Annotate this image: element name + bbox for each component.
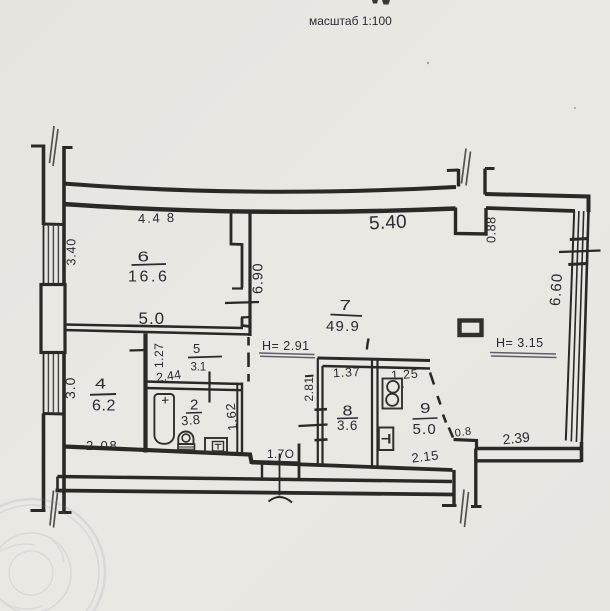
svg-text:H= 3.15: H= 3.15 [496, 336, 544, 350]
svg-text:0.8: 0.8 [454, 425, 473, 439]
svg-text:5: 5 [193, 341, 200, 356]
svg-text:5.40: 5.40 [369, 212, 408, 235]
svg-text:3.6: 3.6 [337, 418, 358, 433]
svg-text:3.1: 3.1 [191, 362, 206, 374]
svg-text:49.9: 49.9 [326, 318, 360, 335]
svg-text:3.40: 3.40 [65, 238, 79, 266]
svg-text:5.0: 5.0 [139, 309, 166, 328]
svg-text:2.39: 2.39 [502, 429, 531, 448]
svg-text:1.7O: 1.7O [267, 447, 294, 461]
svg-text:масштаб 1:100: масштаб 1:100 [309, 14, 392, 28]
svg-text:H= 2.91: H= 2.91 [262, 339, 310, 353]
svg-text:1.27: 1.27 [152, 343, 166, 368]
svg-text:2.08: 2.08 [86, 438, 119, 453]
svg-text:4: 4 [95, 377, 106, 393]
svg-text:9: 9 [420, 400, 431, 417]
svg-text:6.2: 6.2 [92, 398, 116, 415]
svg-text:6.90: 6.90 [251, 263, 267, 294]
svg-text:5.0: 5.0 [413, 421, 437, 438]
svg-text:6.60: 6.60 [547, 272, 566, 306]
svg-text:1.37: 1.37 [333, 365, 361, 380]
svg-text:0.88: 0.88 [485, 216, 499, 243]
svg-text:1.62: 1.62 [223, 402, 240, 432]
svg-text:3.8: 3.8 [180, 412, 201, 429]
svg-text:3.0: 3.0 [62, 377, 78, 399]
svg-text:2.81: 2.81 [302, 377, 316, 402]
svg-text:4.4 8: 4.4 8 [138, 210, 176, 226]
svg-text:7: 7 [340, 297, 352, 314]
svg-text:6: 6 [138, 250, 150, 266]
svg-text:2: 2 [190, 397, 198, 414]
svg-text:16.6: 16.6 [128, 269, 170, 286]
svg-text:1.25: 1.25 [391, 367, 419, 383]
